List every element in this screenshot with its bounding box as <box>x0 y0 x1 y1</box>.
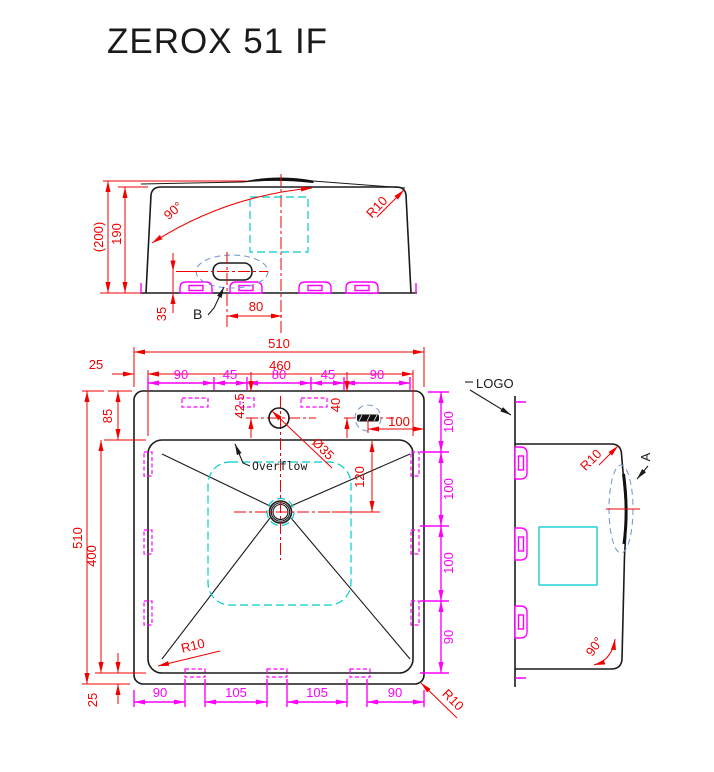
side-logo-label: LOGO <box>465 376 514 415</box>
svg-text:42.5: 42.5 <box>232 393 247 418</box>
svg-text:90: 90 <box>388 685 402 700</box>
plan-dim-bowl-depth: 400 <box>84 440 146 673</box>
svg-text:R10: R10 <box>363 193 390 221</box>
front-mounting-clips <box>180 282 378 293</box>
svg-text:105: 105 <box>306 685 328 700</box>
plan-outer-radius: R10 <box>421 683 467 718</box>
svg-text:80: 80 <box>272 367 286 382</box>
plan-template-square <box>208 462 351 605</box>
svg-text:90°: 90° <box>583 634 607 659</box>
side-body-outline <box>515 444 626 669</box>
side-mounting-clips <box>515 447 527 638</box>
svg-text:120: 120 <box>352 466 367 488</box>
svg-text:LOGO: LOGO <box>476 376 514 391</box>
svg-text:100: 100 <box>441 478 456 500</box>
front-flange-line-left <box>141 182 243 184</box>
plan-dim-overall-height: 510 <box>70 391 130 684</box>
side-view: LOGO R10 A 90° <box>465 376 653 687</box>
drawing-title: ZEROX 51 IF <box>107 22 328 61</box>
svg-text:R10: R10 <box>439 686 466 713</box>
svg-text:25: 25 <box>89 357 103 372</box>
svg-text:80: 80 <box>249 299 263 314</box>
front-radius-dim: R10 <box>363 190 404 221</box>
svg-text:R10: R10 <box>577 446 604 473</box>
svg-text:510: 510 <box>70 527 85 549</box>
svg-text:90: 90 <box>370 367 384 382</box>
front-angle-dim: 90° <box>152 188 312 243</box>
svg-text:(200): (200) <box>91 222 106 252</box>
svg-text:25: 25 <box>85 693 100 707</box>
front-view: (200) 190 90° R10 35 80 <box>91 174 417 334</box>
plan-overflow-label: Overflow <box>235 444 307 473</box>
side-angle-dim: 90° <box>583 634 615 665</box>
side-template-square <box>539 527 597 585</box>
svg-text:85: 85 <box>100 409 115 423</box>
drawing-sheet: ZEROX 51 IF <box>0 0 714 772</box>
plan-dim-left-margin: 25 <box>89 357 170 374</box>
svg-text:90: 90 <box>153 685 167 700</box>
front-dim-body-height: 190 <box>109 187 148 293</box>
plan-view: 510 460 25 90 45 80 45 90 <box>70 336 467 718</box>
side-detail-a: A <box>637 452 653 479</box>
svg-text:A: A <box>638 452 653 461</box>
front-centerlines <box>196 174 281 334</box>
svg-text:R10: R10 <box>180 635 207 655</box>
plan-right-chain: 100 100 100 90 <box>420 392 456 673</box>
svg-text:Overflow: Overflow <box>252 459 307 473</box>
plan-bowl-diagonals <box>162 454 410 659</box>
front-template-square <box>250 197 308 252</box>
svg-text:100: 100 <box>441 552 456 574</box>
side-radius-dim: R10 <box>577 446 618 474</box>
plan-top-chain: 90 45 80 45 90 <box>148 367 410 390</box>
svg-text:510: 510 <box>268 336 290 351</box>
svg-text:45: 45 <box>223 367 237 382</box>
svg-text:100: 100 <box>388 414 410 429</box>
plan-dim-top-margin: 85 <box>100 391 146 440</box>
svg-text:190: 190 <box>109 223 124 245</box>
svg-text:90°: 90° <box>161 198 186 222</box>
svg-text:40: 40 <box>328 398 343 412</box>
svg-text:45: 45 <box>321 367 335 382</box>
svg-text:400: 400 <box>84 545 99 567</box>
front-dim-slot-offset: 80 <box>227 299 282 316</box>
svg-text:105: 105 <box>225 685 247 700</box>
svg-text:35: 35 <box>154 307 169 321</box>
plan-dim-drain-down: 120 <box>332 441 380 512</box>
front-drainer-lens <box>243 178 313 183</box>
svg-text:Ø35: Ø35 <box>309 435 337 463</box>
cad-drawing: ZEROX 51 IF <box>0 0 714 772</box>
plan-outer-outline <box>134 391 424 684</box>
svg-text:90: 90 <box>174 367 188 382</box>
svg-text:100: 100 <box>441 411 456 433</box>
svg-text:90: 90 <box>441 630 456 644</box>
plan-inner-radius: R10 <box>158 635 220 666</box>
svg-text:B: B <box>193 306 202 322</box>
